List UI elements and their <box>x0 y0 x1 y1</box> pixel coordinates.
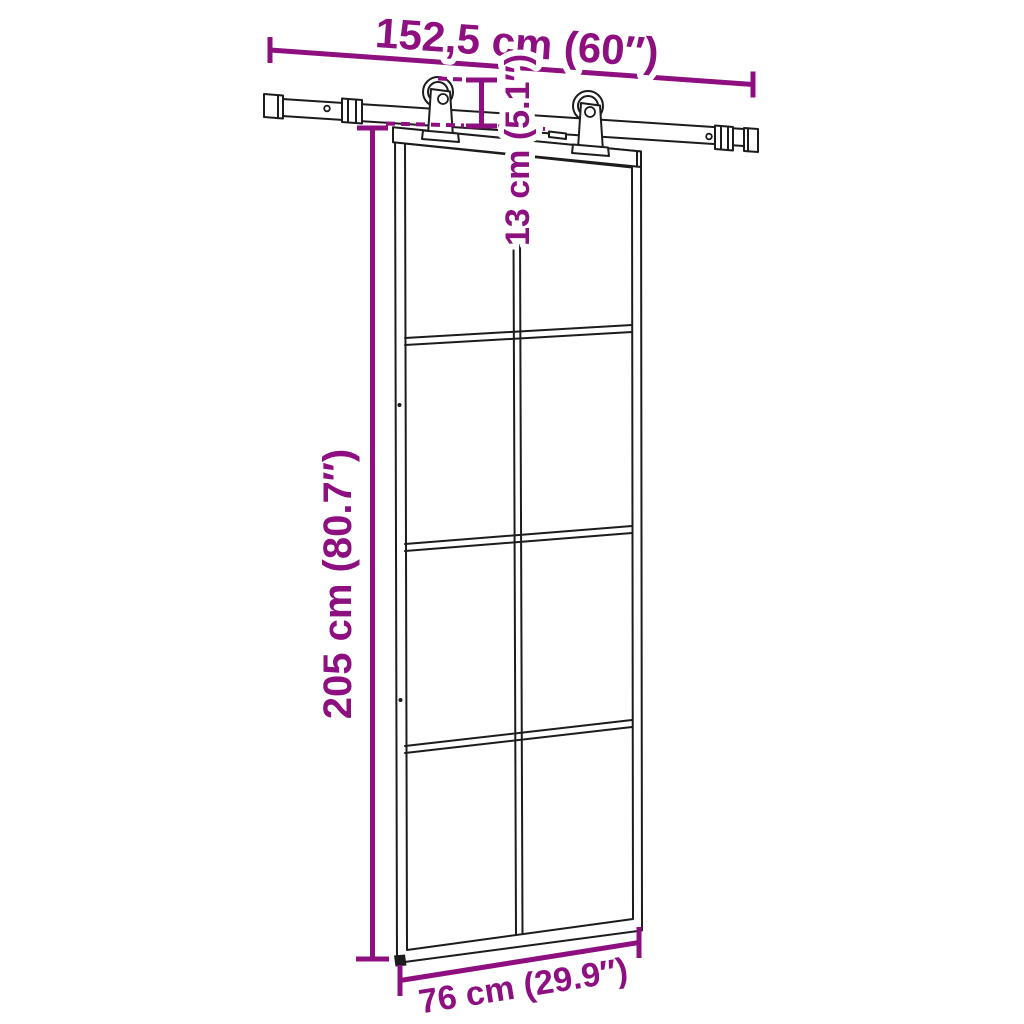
dimension-label-door-height: 205 cm (80.7″) <box>316 449 360 719</box>
hanger-bolt-left <box>438 94 448 104</box>
door <box>393 127 642 966</box>
dimension-door-height: 205 cm (80.7″) <box>316 128 389 959</box>
dimension-diagram: 152,5 cm (60″) 13 cm (5.1″) 205 cm (80.7… <box>0 0 1024 1024</box>
hanger-foot-right <box>572 145 609 157</box>
rail-end-cap-left <box>264 94 283 119</box>
door-glass-opening <box>405 144 633 951</box>
floor-guide-block <box>394 955 407 967</box>
rail-connector-right <box>715 126 733 151</box>
rail-screw-hole <box>706 134 712 140</box>
dimension-label-drop: 13 cm (5.1″) <box>499 54 537 246</box>
hanger-bolt-right <box>585 107 595 117</box>
diagram-canvas: 152,5 cm (60″) 13 cm (5.1″) 205 cm (80.7… <box>0 0 1024 1024</box>
anti-jump-clip <box>549 132 566 140</box>
frame-screw-dot <box>399 698 403 702</box>
rail-connector-left <box>342 99 362 124</box>
hanger-foot-left <box>422 131 459 143</box>
rail-end-cap-right <box>744 128 758 152</box>
rail-screw-hole <box>324 106 330 112</box>
frame-screw-dot <box>398 403 402 407</box>
dimension-leader <box>438 79 464 80</box>
